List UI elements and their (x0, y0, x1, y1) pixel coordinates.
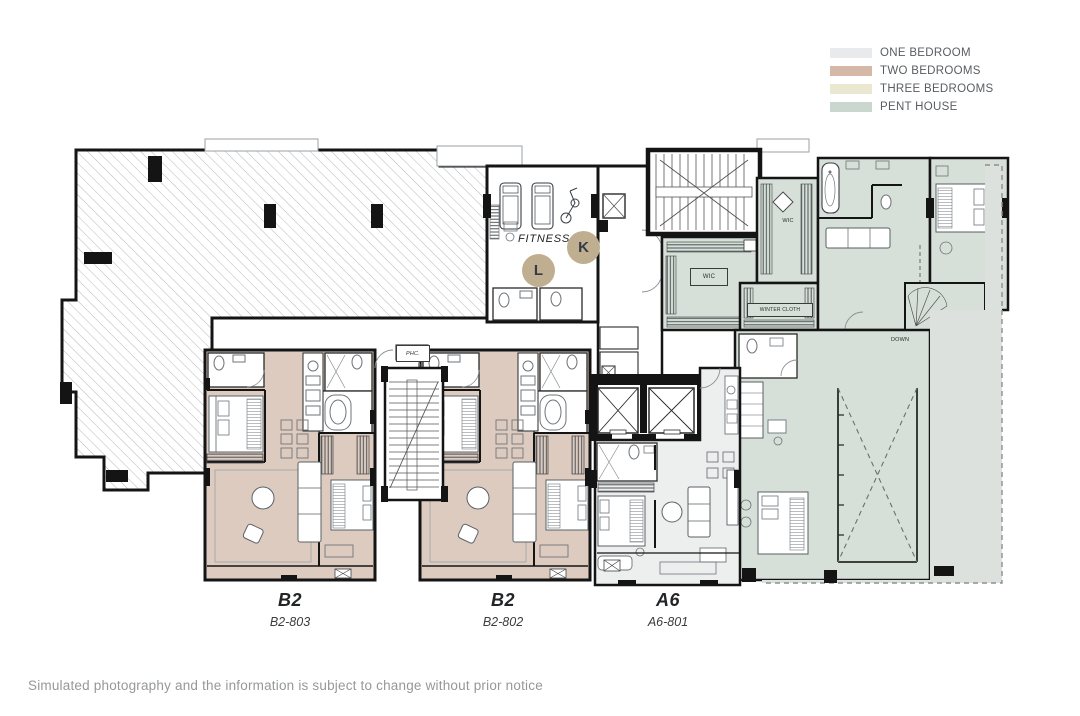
legend-label: TWO BEDROOMS (880, 65, 981, 77)
legend-label: THREE BEDROOMS (880, 83, 993, 95)
unit-type: B2 (270, 590, 310, 611)
legend-swatch-two-bedrooms (830, 66, 872, 76)
legend-label: PENT HOUSE (880, 101, 958, 113)
legend-item-three-bedrooms: THREE BEDROOMS (830, 80, 993, 98)
winter-cloth-label: WINTER CLOTH (747, 303, 813, 317)
legend-item-pent-house: PENT HOUSE (830, 98, 993, 116)
wic-corridor-label: WIC (775, 218, 801, 224)
unit-number: B2-803 (270, 615, 310, 629)
unit-number: B2-802 (483, 615, 523, 629)
stair-core-top (648, 150, 760, 234)
legend-item-two-bedrooms: TWO BEDROOMS (830, 62, 993, 80)
legend: ONE BEDROOM TWO BEDROOMS THREE BEDROOMS … (830, 44, 993, 116)
penthouse-lower (735, 330, 930, 580)
legend-label: ONE BEDROOM (880, 47, 971, 59)
floor-plan-page: ONE BEDROOM TWO BEDROOMS THREE BEDROOMS … (0, 0, 1080, 716)
stair-core-mid (381, 345, 448, 502)
disclaimer-text: Simulated photography and the informatio… (28, 678, 543, 693)
unit-b2-803 (205, 350, 375, 580)
wic-room-label: WIC (690, 268, 728, 286)
marker-l[interactable]: L (522, 254, 555, 287)
phc-label: PHC. (396, 345, 430, 362)
unit-label-a6-801: A6 A6-801 (648, 590, 688, 629)
unit-label-b2-803: B2 B2-803 (270, 590, 310, 629)
legend-item-one-bedroom: ONE BEDROOM (830, 44, 993, 62)
legend-swatch-one-bedroom (830, 48, 872, 58)
unit-b2-802 (420, 350, 590, 580)
elevator-core (590, 374, 704, 441)
legend-swatch-pent-house (830, 102, 872, 112)
unit-label-b2-802: B2 B2-802 (483, 590, 523, 629)
unit-number: A6-801 (648, 615, 688, 629)
unit-type: A6 (648, 590, 688, 611)
legend-swatch-three-bedrooms (830, 84, 872, 94)
down-stairs-label: DOWN (891, 337, 921, 343)
unit-type: B2 (483, 590, 523, 611)
marker-k[interactable]: K (567, 231, 600, 264)
